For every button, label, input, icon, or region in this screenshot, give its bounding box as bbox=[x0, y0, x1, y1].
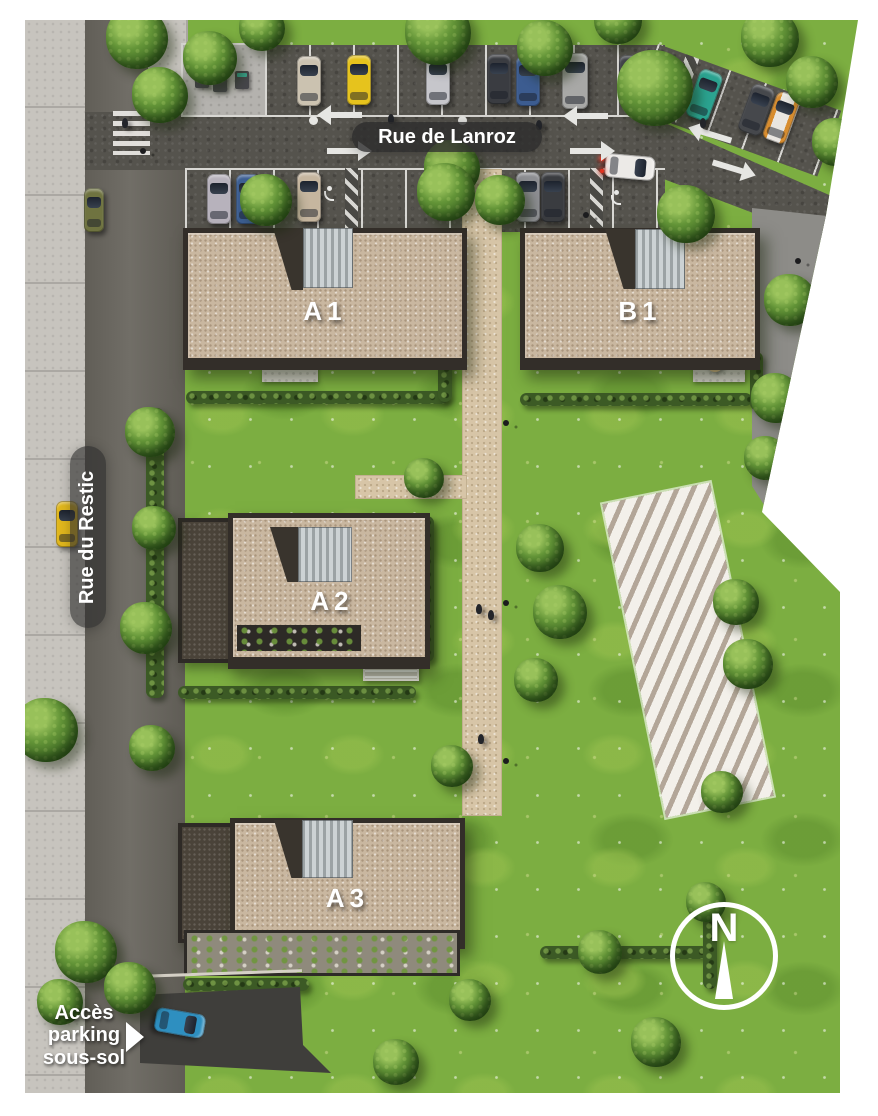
pedestrian bbox=[700, 118, 706, 128]
no-parking-hatching bbox=[590, 168, 603, 230]
tree bbox=[764, 274, 816, 326]
path-light bbox=[503, 420, 509, 426]
shrub bbox=[516, 524, 564, 572]
tree bbox=[812, 118, 860, 166]
building-b1: B1 bbox=[520, 228, 760, 370]
tree bbox=[744, 436, 788, 480]
building-label-a2: A2 bbox=[310, 586, 353, 617]
building-label-a3: A3 bbox=[326, 883, 369, 914]
tree bbox=[125, 407, 175, 457]
shrub bbox=[449, 979, 491, 1021]
tree bbox=[741, 9, 799, 67]
street-label-lanroz-text: Rue de Lanroz bbox=[378, 126, 516, 149]
road-arrow-left bbox=[330, 112, 362, 118]
shrub bbox=[701, 771, 743, 813]
building-label-a1: A1 bbox=[303, 296, 346, 327]
path-light bbox=[503, 600, 509, 606]
building-a2: A2 bbox=[228, 513, 430, 669]
tree bbox=[751, 373, 801, 423]
street-lamp bbox=[583, 212, 589, 218]
tree bbox=[239, 5, 285, 51]
shrub bbox=[373, 1039, 419, 1085]
pedestrian bbox=[478, 734, 484, 744]
roof-shadow-wedge bbox=[274, 820, 302, 878]
tree bbox=[129, 725, 175, 771]
roof-metal-panel bbox=[298, 527, 352, 582]
roof-shadow-wedge bbox=[605, 229, 635, 289]
tree bbox=[594, 0, 642, 44]
tree bbox=[417, 163, 475, 221]
tree bbox=[405, 0, 471, 65]
tree bbox=[132, 506, 176, 550]
roof-metal-panel bbox=[302, 820, 353, 878]
central-footpath bbox=[463, 170, 501, 815]
shrub bbox=[431, 745, 473, 787]
tree bbox=[14, 698, 78, 762]
site-plan-rendering: A1 B1 A2 A3 bbox=[0, 0, 878, 1116]
tree bbox=[657, 185, 715, 243]
road-arrow-right bbox=[327, 148, 359, 154]
tree bbox=[106, 7, 168, 69]
pedestrian bbox=[122, 118, 128, 128]
site-area: A1 B1 A2 A3 bbox=[0, 0, 878, 1116]
car bbox=[487, 54, 511, 104]
car bbox=[297, 56, 321, 106]
shrub bbox=[723, 639, 773, 689]
roof-shadow-wedge bbox=[273, 228, 303, 290]
roof-shadow-wedge bbox=[270, 527, 298, 582]
shrub bbox=[404, 458, 444, 498]
tree bbox=[183, 31, 237, 85]
tree bbox=[132, 67, 188, 123]
hedge bbox=[520, 393, 752, 406]
car bbox=[541, 172, 565, 222]
road-dot-marking bbox=[309, 116, 318, 125]
shrub bbox=[578, 930, 622, 974]
waste-bin bbox=[235, 71, 249, 89]
tree bbox=[475, 175, 525, 225]
hedge bbox=[186, 391, 448, 404]
tree bbox=[617, 50, 693, 126]
accessible-parking-icon bbox=[323, 186, 335, 202]
shrub bbox=[533, 585, 587, 639]
path-light bbox=[503, 758, 509, 764]
car bbox=[207, 174, 231, 224]
roof-metal-panel bbox=[303, 228, 353, 288]
pedestrian bbox=[476, 604, 482, 614]
tree bbox=[517, 20, 573, 76]
tree bbox=[120, 602, 172, 654]
no-parking-hatching bbox=[345, 168, 358, 230]
hedge bbox=[178, 686, 416, 699]
tree bbox=[786, 56, 838, 108]
brake-light bbox=[600, 169, 604, 173]
street-label-lanroz: Rue de Lanroz bbox=[352, 122, 542, 152]
shrub bbox=[713, 579, 759, 625]
shrub bbox=[514, 658, 558, 702]
street-label-restic: Rue du Restic bbox=[70, 446, 106, 628]
car bbox=[297, 172, 321, 222]
parking-access-arrow-icon bbox=[126, 1022, 144, 1052]
street-lamp bbox=[140, 148, 146, 154]
road-arrow-right bbox=[570, 148, 602, 154]
street-label-restic-text: Rue du Restic bbox=[77, 470, 100, 603]
tree bbox=[240, 174, 292, 226]
car-yellow bbox=[347, 55, 371, 105]
compass: N bbox=[670, 902, 778, 1010]
parking-access-label: Accès parking sous-sol bbox=[28, 1002, 140, 1069]
compass-needle bbox=[715, 941, 733, 999]
street-lamp bbox=[795, 258, 801, 264]
building-label-b1: B1 bbox=[618, 296, 661, 327]
pedestrian bbox=[488, 610, 494, 620]
ground-terraces-a3 bbox=[184, 930, 460, 976]
shrub bbox=[631, 1017, 681, 1067]
accessible-parking-icon bbox=[610, 190, 622, 206]
roof-terrace bbox=[237, 625, 361, 651]
car-olive bbox=[84, 188, 104, 232]
building-a1: A1 bbox=[183, 228, 467, 370]
road-arrow-left bbox=[576, 113, 608, 119]
